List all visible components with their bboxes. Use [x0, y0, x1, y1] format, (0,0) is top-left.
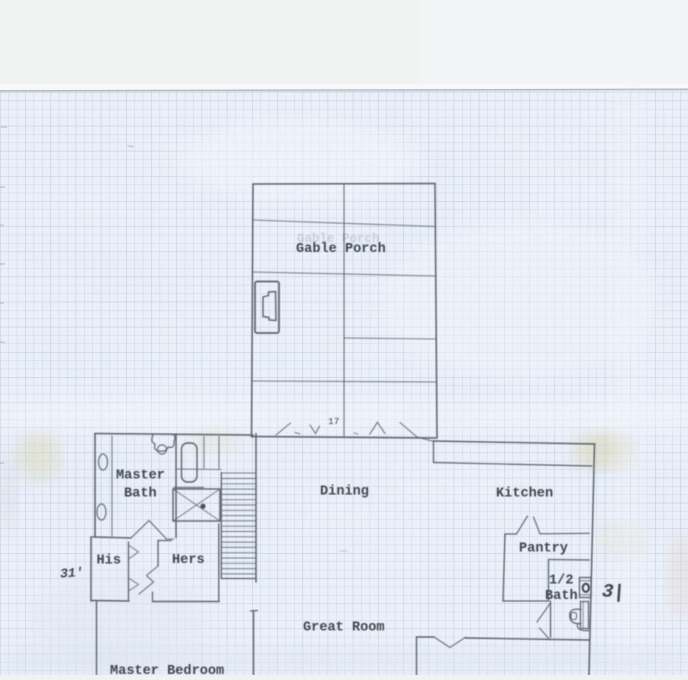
- svg-text:Great Room: Great Room: [303, 621, 385, 636]
- svg-text:Hers: Hers: [172, 553, 205, 568]
- svg-text:Gable Porch: Gable Porch: [296, 242, 386, 257]
- svg-text:Dining: Dining: [320, 485, 369, 500]
- svg-text:17: 17: [328, 416, 339, 427]
- svg-text:Pantry: Pantry: [519, 542, 568, 557]
- svg-text:Master: Master: [116, 469, 165, 484]
- svg-text:31': 31': [60, 565, 84, 582]
- svg-text:Bath: Bath: [124, 487, 157, 502]
- svg-text:His: His: [97, 554, 121, 569]
- svg-text:Master Bedroom: Master Bedroom: [110, 664, 224, 675]
- svg-text:Kitchen: Kitchen: [496, 487, 553, 502]
- svg-text:Bath: Bath: [545, 589, 578, 604]
- svg-text:1/2: 1/2: [549, 574, 573, 589]
- svg-text:3|: 3|: [601, 580, 625, 604]
